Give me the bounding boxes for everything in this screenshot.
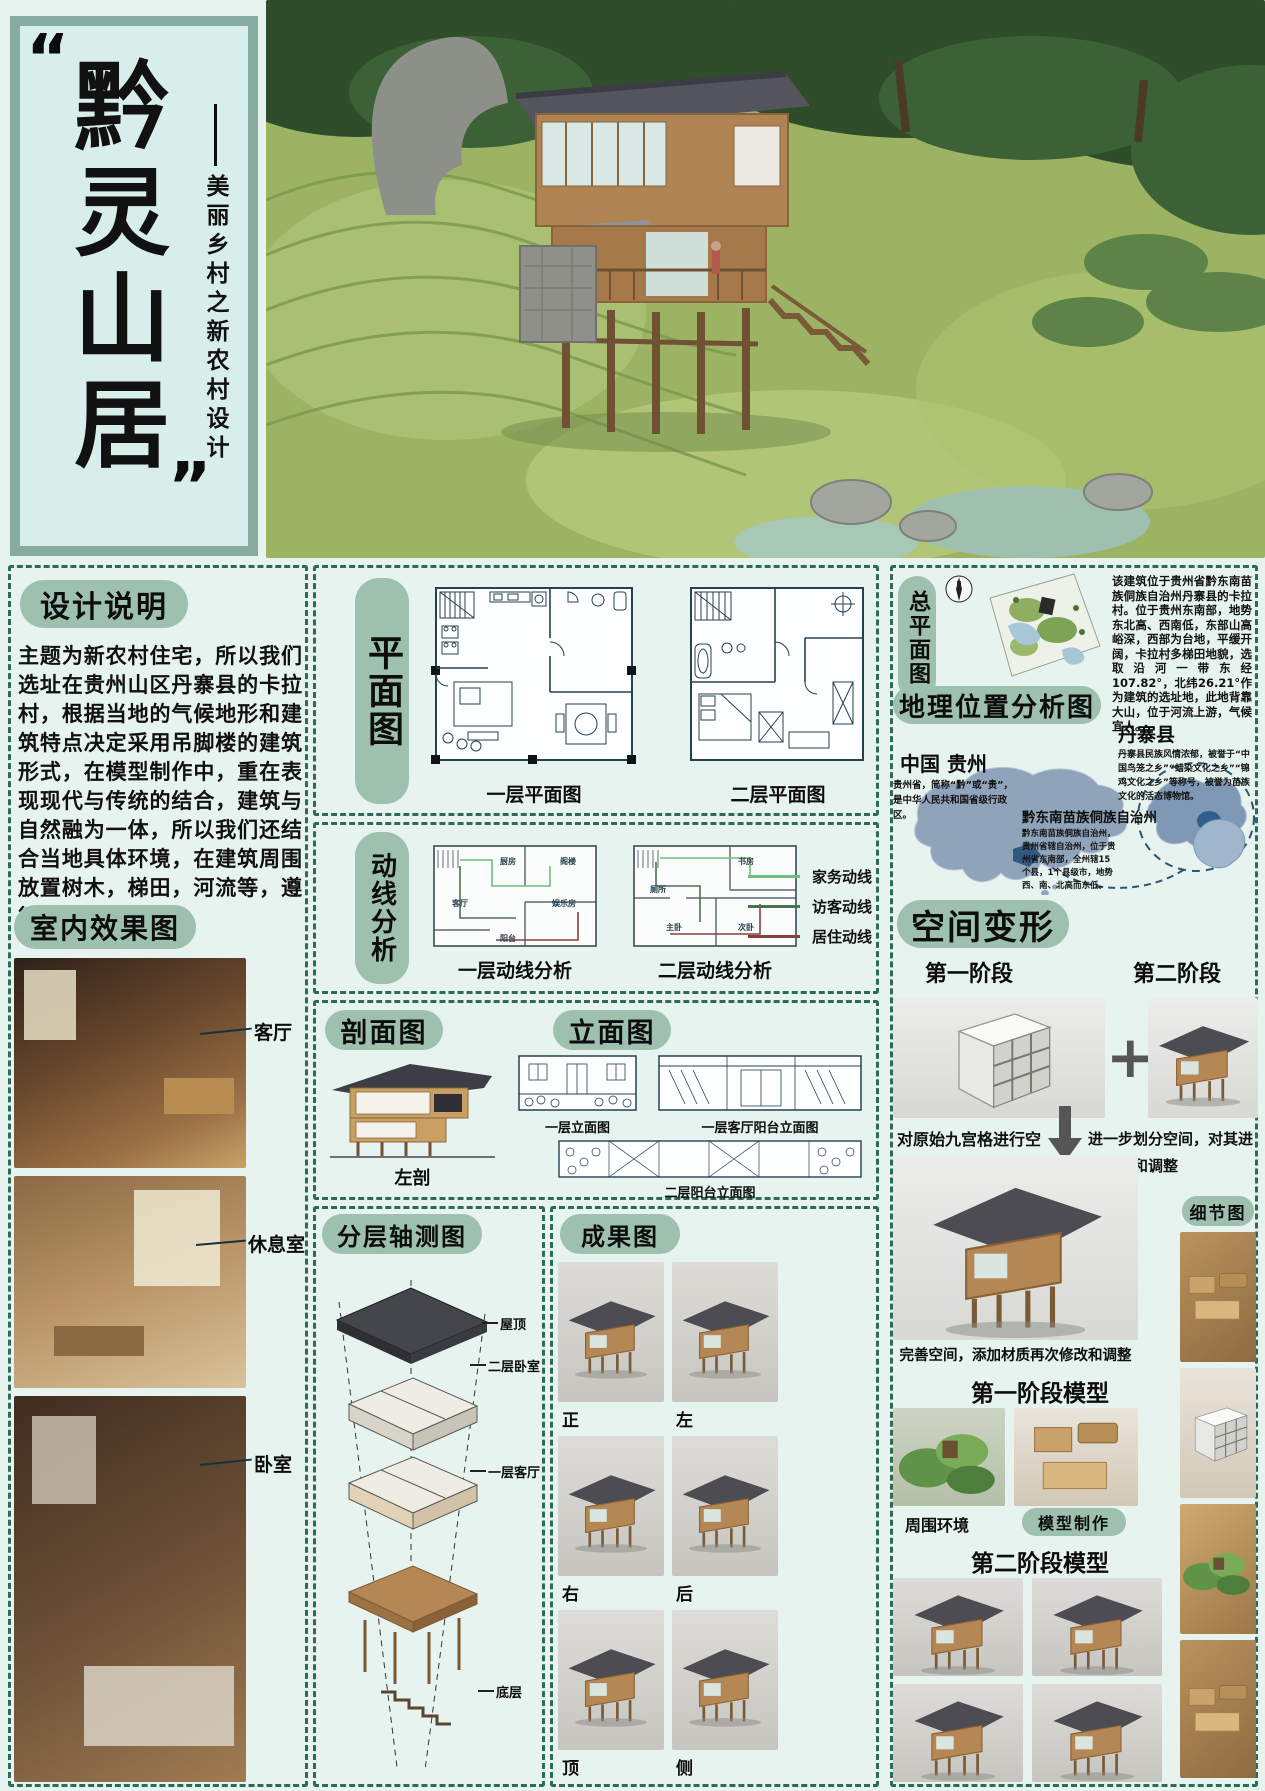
interior-label-living-room: 客厅	[254, 1018, 292, 1045]
interior-photo-living-room	[14, 958, 246, 1168]
visitor-line-label: 访客动线	[812, 896, 872, 917]
compass-icon: N	[944, 574, 974, 604]
result-label-left: 左	[676, 1406, 693, 1431]
detail-photo-2	[1180, 1368, 1256, 1498]
hero-landscape-graphic	[266, 0, 1265, 558]
floor-plan-pill: 平面图	[355, 578, 409, 804]
elevation-pill: 立面图	[553, 1010, 671, 1050]
environment-model-photo	[893, 1408, 1005, 1506]
geo-header-pill: 地理位置分析图	[893, 686, 1101, 724]
stage1-model-image	[893, 998, 1105, 1118]
environment-label: 周围环境	[905, 1512, 969, 1536]
elevation3-caption: 二层阳台立面图	[600, 1182, 820, 1201]
axon-label-living1: 一层客厅	[488, 1462, 540, 1481]
resident-line-label: 居住动线	[812, 926, 872, 947]
result-photo-top	[558, 1610, 664, 1750]
hero-render-image	[266, 0, 1265, 558]
danzhai-label: 丹寨县	[1118, 720, 1175, 747]
axon-label-bedroom2: 二层卧室	[488, 1356, 540, 1375]
legend-item-visitor: 访客动线	[748, 896, 872, 917]
details-header-pill: 细节图	[1182, 1196, 1254, 1226]
detail-photo-4	[1180, 1640, 1256, 1778]
result-label-side: 侧	[676, 1754, 693, 1779]
design-notes-body: 主题为新农村住宅，所以我们选址在贵州山区丹寨县的卡拉村，根据当地的气候地形和建筑…	[18, 642, 302, 932]
circulation-floor1-caption: 一层动线分析	[415, 956, 615, 983]
circulation-pill: 动线分析	[355, 832, 409, 984]
model-making-photo	[1014, 1408, 1138, 1506]
siteplan-drawing	[982, 570, 1104, 680]
result-photo-left	[672, 1262, 778, 1402]
axon-label-base: 底层	[496, 1682, 522, 1701]
stage2-photo-3	[893, 1684, 1023, 1782]
stage2-models-header: 第二阶段模型	[930, 1544, 1150, 1578]
resident-line-swatch	[748, 935, 800, 938]
floor2-plan-caption: 二层平面图	[672, 780, 884, 807]
housework-line-label: 家务动线	[812, 866, 872, 887]
poster-subtitle: 美丽乡村之新农村设计	[198, 174, 232, 464]
result-photo-side	[672, 1610, 778, 1750]
section-caption: 左剖	[330, 1164, 495, 1190]
room-label-balcony: 阳台	[500, 933, 516, 944]
elevation2-drawing	[655, 1052, 865, 1114]
elevation3-drawing	[556, 1138, 864, 1180]
svg-text:N: N	[956, 580, 961, 588]
model-making-pill: 模型制作	[1022, 1508, 1126, 1536]
section-drawing	[330, 1056, 495, 1160]
siteplan-body: 该建筑位于贵州省黔东南苗族侗族自治州丹寨县的卡拉村。位于贵州东南部，地势东北高、…	[1112, 574, 1252, 734]
result-label-front: 正	[562, 1406, 579, 1431]
results-pill: 成果图	[560, 1214, 680, 1254]
qiandongnan-label: 黔东南苗族侗族自治州	[1022, 806, 1157, 826]
qiandongnan-desc: 黔东南苗族侗族自治州，贵州省辖自治州，位于贵州省东南部，全州辖15个县，1个县级…	[1022, 828, 1116, 893]
section-pill: 剖面图	[325, 1010, 443, 1050]
floor1-plan-caption: 一层平面图	[428, 780, 640, 807]
danzhai-map-graphic	[1185, 812, 1253, 876]
stage2-photo-2	[1032, 1578, 1162, 1676]
detail-photo-1	[1180, 1232, 1256, 1362]
elevation1-caption: 一层立面图	[505, 1117, 650, 1136]
down-arrow-icon	[1048, 1106, 1082, 1162]
design-poster: “ 黔灵山居 ” 美丽乡村之新农村设计	[0, 0, 1265, 1791]
room-label-master-bedroom: 主卧	[666, 922, 682, 933]
stage2-photo-4	[1032, 1684, 1162, 1782]
room-label-toilet: 厕所	[650, 884, 666, 895]
roof-tick	[482, 1322, 498, 1324]
interior-photo-bedroom	[14, 1396, 246, 1782]
final-model-caption: 完善空间，添加材质再次修改和调整	[893, 1344, 1138, 1365]
room-label-attic: 阁楼	[560, 856, 576, 867]
siteplan-pill: 总平面图	[898, 576, 936, 700]
stage2-model-image	[1148, 998, 1258, 1118]
final-model-render	[893, 1155, 1138, 1340]
poster-title: 黔灵山居	[60, 56, 166, 496]
room-label-living: 客厅	[452, 898, 468, 909]
visitor-line-swatch	[748, 905, 800, 908]
circulation-floor2-caption: 二层动线分析	[615, 956, 815, 983]
subtitle-dash	[214, 104, 217, 166]
floor2-plan-drawing	[685, 582, 870, 774]
legend-item-resident: 居住动线	[748, 926, 872, 947]
poster-subtitle-column: 美丽乡村之新农村设计	[198, 104, 232, 464]
design-notes-header: 设计说明	[20, 580, 188, 628]
result-photo-back	[672, 1436, 778, 1576]
stage2-photo-1	[893, 1578, 1023, 1676]
axon-pill: 分层轴测图	[322, 1214, 482, 1254]
interior-label-bedroom: 卧室	[254, 1450, 292, 1477]
room-label-kitchen: 厨房	[500, 856, 516, 867]
detail-photo-3	[1180, 1504, 1256, 1634]
elevation2-caption: 一层客厅阳台立面图	[655, 1117, 865, 1136]
base-tick	[478, 1690, 494, 1692]
interior-label-lounge: 休息室	[248, 1230, 305, 1257]
china-guizhou-desc: 贵州省，简称“黔”或“贵”，是中华人民共和国省级行政区。	[893, 778, 1021, 823]
stage1-models-header: 第一阶段模型	[940, 1374, 1140, 1408]
result-label-back: 后	[676, 1580, 693, 1605]
interior-header: 室内效果图	[14, 905, 196, 949]
room-label-rec-room: 娱乐房	[552, 898, 576, 909]
housework-line-swatch	[748, 875, 800, 878]
china-guizhou-label: 中国 贵州	[900, 748, 987, 777]
floor1-plan-drawing	[428, 582, 640, 774]
result-label-right: 右	[562, 1580, 579, 1605]
result-label-top: 顶	[562, 1754, 579, 1779]
stage1-label: 第一阶段	[925, 956, 1013, 988]
axon-drawing	[325, 1262, 500, 1777]
interior-photo-lounge	[14, 1176, 246, 1388]
floor1-tick	[470, 1470, 486, 1472]
transform-header-pill: 空间变形	[897, 900, 1069, 948]
result-photo-right	[558, 1436, 664, 1576]
floor2-tick	[470, 1364, 486, 1366]
title-box: “ 黔灵山居 ” 美丽乡村之新农村设计	[10, 16, 258, 556]
legend-item-housework: 家务动线	[748, 866, 872, 887]
axon-label-roof: 屋顶	[500, 1314, 526, 1333]
danzhai-desc: 丹寨县民族风情浓郁，被誉于“中国鸟笼之乡”“蜡染文化之乡”“锦鸡文化之乡”等称号…	[1118, 748, 1254, 804]
result-photo-front	[558, 1262, 664, 1402]
elevation1-drawing	[515, 1052, 640, 1114]
stage2-label: 第二阶段	[1133, 956, 1221, 988]
